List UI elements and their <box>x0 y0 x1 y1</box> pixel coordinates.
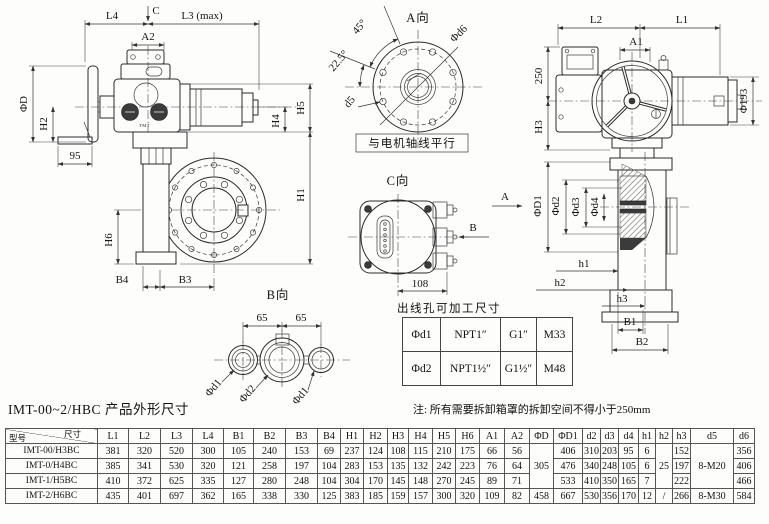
dim-cell: 203 <box>601 444 619 459</box>
dim-cell: 127 <box>224 474 254 489</box>
dim-cell: 64 <box>505 459 530 474</box>
dim-cell: 104 <box>318 474 341 489</box>
dim-phid1-left: Φd1 <box>203 377 224 399</box>
col-header: B1 <box>224 429 254 444</box>
dim-cell: 125 <box>318 489 341 504</box>
dim-H4: H4 <box>270 114 282 128</box>
dim-cell: 185 <box>364 489 388 504</box>
dim-65-left: 65 <box>257 312 269 324</box>
front-view-drawing <box>548 47 762 158</box>
model-cell: IMT-0/H4BC <box>6 459 98 474</box>
dim-cell: 71 <box>505 474 530 489</box>
dim-B2: B2 <box>636 336 649 348</box>
dim-cell: 584 <box>734 489 755 504</box>
dim-phiD: ΦD <box>18 96 30 112</box>
dim-cell: 56 <box>505 444 530 459</box>
outlet-row: Φd1NPT1″G1″M33 <box>403 318 573 352</box>
dim-cell: 8-M20 <box>691 444 734 489</box>
dim-cell: 95 <box>619 444 639 459</box>
dim-L3: L3 (max) <box>181 10 223 22</box>
table-row: IMT-2/H6BC435401697362165338330125383185… <box>6 489 755 504</box>
dim-phid2-mid: Φd2 <box>237 383 258 405</box>
dim-L1: L1 <box>676 14 688 26</box>
dim-H3: H3 <box>533 120 545 134</box>
dim-cell: 283 <box>341 459 364 474</box>
page-title: IMT-00~2/HBC 产品外形尺寸 <box>8 398 189 418</box>
dim-L2: L2 <box>590 14 602 26</box>
dim-cell: 406 <box>554 444 583 459</box>
model-cell: IMT-00/H3BC <box>6 444 98 459</box>
dim-cell: 108 <box>388 444 409 459</box>
dim-cell: 197 <box>673 459 691 474</box>
dim-phid4: Φd4 <box>589 197 601 217</box>
b-view-title: B向 <box>267 287 290 302</box>
dim-cell: 304 <box>341 474 364 489</box>
a-view-note: 与电机轴线平行 <box>368 136 456 150</box>
dim-cell: 266 <box>673 489 691 504</box>
dim-cell: 697 <box>161 489 193 504</box>
outlet-cell: NPT1½″ <box>441 352 501 386</box>
dim-phid6: Φd6 <box>448 23 470 45</box>
c-view-title: C向 <box>387 173 410 188</box>
dim-cell: 135 <box>388 459 409 474</box>
dim-cell: 159 <box>388 489 409 504</box>
dim-cell: 69 <box>318 444 341 459</box>
dim-cell: 157 <box>409 489 433 504</box>
dim-h2: h2 <box>555 277 566 289</box>
dim-cell: 7 <box>639 474 656 489</box>
dim-cell: 667 <box>554 489 583 504</box>
col-header: h3 <box>673 429 691 444</box>
col-header: H6 <box>456 429 480 444</box>
dim-cell: 340 <box>583 459 601 474</box>
dim-cell: 335 <box>193 474 224 489</box>
dim-phid2: Φd2 <box>550 196 562 215</box>
dim-cell: 240 <box>254 444 286 459</box>
dim-H5: H5 <box>295 101 307 115</box>
dim-cell: 280 <box>254 474 286 489</box>
dim-cell: 105 <box>224 444 254 459</box>
dim-cell: 362 <box>193 489 224 504</box>
outlet-cell: NPT1″ <box>441 318 501 352</box>
dim-cell: 410 <box>583 474 601 489</box>
col-header: L2 <box>129 429 161 444</box>
dim-cell: 197 <box>286 459 318 474</box>
dim-cell: 248 <box>286 474 318 489</box>
brand-label: TMT <box>139 123 150 128</box>
dim-cell: 338 <box>254 489 286 504</box>
connector-pins <box>384 223 387 253</box>
dir-B-label: B <box>469 222 476 234</box>
dim-cell: 223 <box>456 459 480 474</box>
dim-cell: 145 <box>388 474 409 489</box>
dim-cell: 458 <box>530 489 554 504</box>
col-header: B2 <box>254 429 286 444</box>
dim-cell: 153 <box>364 459 388 474</box>
corner-label-model: 型号 <box>9 432 26 444</box>
section-view-drawing <box>600 152 690 334</box>
dim-cell: 310 <box>583 444 601 459</box>
dim-cell: 356 <box>734 444 755 459</box>
dim-cell: 406 <box>734 459 755 474</box>
dim-h1: h1 <box>579 258 590 270</box>
col-header: ΦD <box>530 429 554 444</box>
col-header: L4 <box>193 429 224 444</box>
dim-cell: 121 <box>224 459 254 474</box>
dim-cell: 148 <box>409 474 433 489</box>
dim-cell: 530 <box>161 459 193 474</box>
dim-cell: 12 <box>639 489 656 504</box>
dim-cell: 520 <box>161 444 193 459</box>
dim-cell: 82 <box>505 489 530 504</box>
dim-cell: 356 <box>601 489 619 504</box>
dim-cell: 222 <box>673 474 691 489</box>
dim-cell: 466 <box>734 474 755 489</box>
dim-cell: 124 <box>364 444 388 459</box>
dim-cell: 305 <box>530 444 554 489</box>
dim-A2: A2 <box>141 31 154 43</box>
col-header: ΦD1 <box>554 429 583 444</box>
outlet-cell: G1″ <box>501 318 537 352</box>
col-header: d5 <box>691 429 734 444</box>
dim-cell: 372 <box>129 474 161 489</box>
outlet-row: Φd2NPT1½″G1½″M48 <box>403 352 573 386</box>
dim-cell: 258 <box>254 459 286 474</box>
table-row: IMT-1/H5BC410372625335127280248104304170… <box>6 474 755 489</box>
dim-B4: B4 <box>116 274 129 286</box>
dim-B3: B3 <box>179 274 192 286</box>
dim-cell: 170 <box>364 474 388 489</box>
dim-cell: 410 <box>98 474 129 489</box>
dim-cell: 401 <box>129 489 161 504</box>
col-header: d2 <box>583 429 601 444</box>
dim-cell: 381 <box>98 444 129 459</box>
dim-45deg: 45° <box>350 17 369 37</box>
table-row: IMT-00/H3BC38132052030010524015369237124… <box>6 444 755 459</box>
dim-H2: H2 <box>38 117 50 130</box>
dim-A1: A1 <box>629 36 642 48</box>
front-view-dimensions: L2 L1 A1 250 H3 Φ193 <box>533 14 759 150</box>
note-text: 注: 所有需要拆卸箱罩的拆卸空间不得小于250mm <box>413 401 650 417</box>
dim-cell: 170 <box>619 489 639 504</box>
col-header: A2 <box>505 429 530 444</box>
dim-phid3: Φd3 <box>570 197 582 217</box>
dim-cell: 330 <box>286 489 318 504</box>
dim-cell: 237 <box>341 444 364 459</box>
dim-cell: 533 <box>554 474 583 489</box>
dim-cell: 350 <box>601 474 619 489</box>
dim-cell: 153 <box>286 444 318 459</box>
dim-B1: B1 <box>624 316 637 328</box>
corner-header: 尺寸型号 <box>6 429 98 444</box>
dim-cell: 270 <box>433 474 456 489</box>
terminal-boxes <box>433 202 457 269</box>
dim-cell: 8-M30 <box>691 489 734 504</box>
outlet-cell: G1½″ <box>501 352 537 386</box>
col-header: H5 <box>433 429 456 444</box>
drawing-svg: TMT <box>0 0 769 424</box>
dim-L4: L4 <box>106 10 119 22</box>
dim-cell: 165 <box>619 474 639 489</box>
dim-cell: 6 <box>639 459 656 474</box>
dim-cell: 385 <box>98 459 129 474</box>
dim-cell: 300 <box>193 444 224 459</box>
dim-cell: 89 <box>480 474 505 489</box>
dir-A-label: A <box>501 191 509 203</box>
dim-cell: 109 <box>480 489 505 504</box>
b-view-drawing: B向 65 65 Φd1 Φd2 Φd1 <box>203 287 350 407</box>
col-header: h2 <box>656 429 673 444</box>
col-header: L1 <box>98 429 129 444</box>
dim-cell: 248 <box>601 459 619 474</box>
dim-cell: 175 <box>456 444 480 459</box>
dim-cell: 383 <box>341 489 364 504</box>
dim-cell: 476 <box>554 459 583 474</box>
col-header: B3 <box>286 429 318 444</box>
dim-cell: 320 <box>456 489 480 504</box>
dim-cell: 320 <box>129 444 161 459</box>
dim-H1: H1 <box>295 188 307 201</box>
col-header: L3 <box>161 429 193 444</box>
a-view-drawing: A向 Φd6 45° 22.5° d5 与电机轴线平行 <box>327 6 484 152</box>
outlet-cell: M48 <box>537 352 573 386</box>
dim-phi193: Φ193 <box>738 88 750 113</box>
col-header: d4 <box>619 429 639 444</box>
corner-label-dim: 尺寸 <box>64 429 81 441</box>
c-view-drawing: C向 108 A B <box>348 173 522 296</box>
dim-65-right: 65 <box>296 312 308 324</box>
col-header: h1 <box>639 429 656 444</box>
dim-d5: d5 <box>342 94 359 111</box>
outlet-cell: Φd1 <box>403 318 441 352</box>
dim-cell: / <box>656 489 673 504</box>
dim-cell: 341 <box>129 459 161 474</box>
header-row: 尺寸型号L1L2L3L4B1B2B3B4H1H2H3H4H5H6A1A2ΦDΦD… <box>6 429 755 444</box>
dim-95: 95 <box>70 150 82 162</box>
col-header: d6 <box>734 429 755 444</box>
side-view-drawing: TMT <box>58 46 302 276</box>
dim-cell: 242 <box>433 459 456 474</box>
dim-cell: 625 <box>161 474 193 489</box>
dim-cell: 300 <box>433 489 456 504</box>
drawing-sheet: TMT <box>0 0 769 524</box>
dim-cell: 152 <box>673 444 691 459</box>
model-cell: IMT-1/H5BC <box>6 474 98 489</box>
dim-C: C <box>152 5 159 17</box>
model-cell: IMT-2/H6BC <box>6 489 98 504</box>
dim-cell: 6 <box>639 444 656 459</box>
dim-cell: 210 <box>433 444 456 459</box>
col-header: H3 <box>388 429 409 444</box>
dim-22-5deg: 22.5° <box>327 48 351 74</box>
dim-cell: 66 <box>480 444 505 459</box>
dim-H6: H6 <box>103 233 115 247</box>
dim-250: 250 <box>533 67 545 84</box>
dim-phiD1: ΦD1 <box>532 195 544 216</box>
col-header: H2 <box>364 429 388 444</box>
outlet-cell: M33 <box>537 318 573 352</box>
dim-cell: 76 <box>480 459 505 474</box>
col-header: B4 <box>318 429 341 444</box>
col-header: A1 <box>480 429 505 444</box>
dim-108: 108 <box>412 278 429 290</box>
dimension-table: 尺寸型号L1L2L3L4B1B2B3B4H1H2H3H4H5H6A1A2ΦDΦD… <box>5 428 755 504</box>
dim-cell: 132 <box>409 459 433 474</box>
a-view-title: A向 <box>406 10 430 25</box>
dim-cell: 115 <box>409 444 433 459</box>
dim-cell: 105 <box>619 459 639 474</box>
dim-cell: 435 <box>98 489 129 504</box>
col-header: H4 <box>409 429 433 444</box>
outlet-table-caption: 出线孔可加工尺寸 <box>397 300 501 316</box>
table-row: IMT-0/H4BC385341530320121258197104283153… <box>6 459 755 474</box>
dim-cell: 25 <box>656 444 673 489</box>
dim-cell: 104 <box>318 459 341 474</box>
dim-cell: 165 <box>224 489 254 504</box>
col-header: H1 <box>341 429 364 444</box>
outlet-cell: Φd2 <box>403 352 441 386</box>
col-header: d3 <box>601 429 619 444</box>
dim-cell: 320 <box>193 459 224 474</box>
dim-cell: 530 <box>583 489 601 504</box>
dim-cell: 245 <box>456 474 480 489</box>
outlet-hole-table: Φd1NPT1″G1″M33Φd2NPT1½″G1½″M48 <box>402 317 573 386</box>
